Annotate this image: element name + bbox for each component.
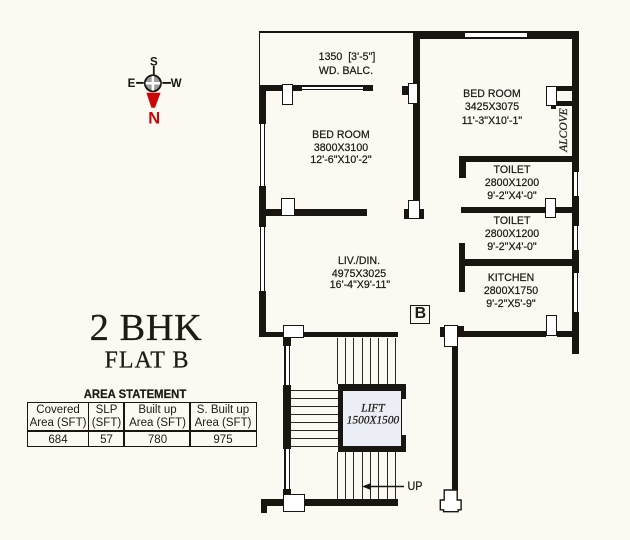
svg-text:E: E (128, 78, 136, 90)
svg-text:N: N (148, 109, 160, 127)
svg-text:S: S (150, 57, 158, 69)
svg-text:W: W (171, 78, 182, 90)
